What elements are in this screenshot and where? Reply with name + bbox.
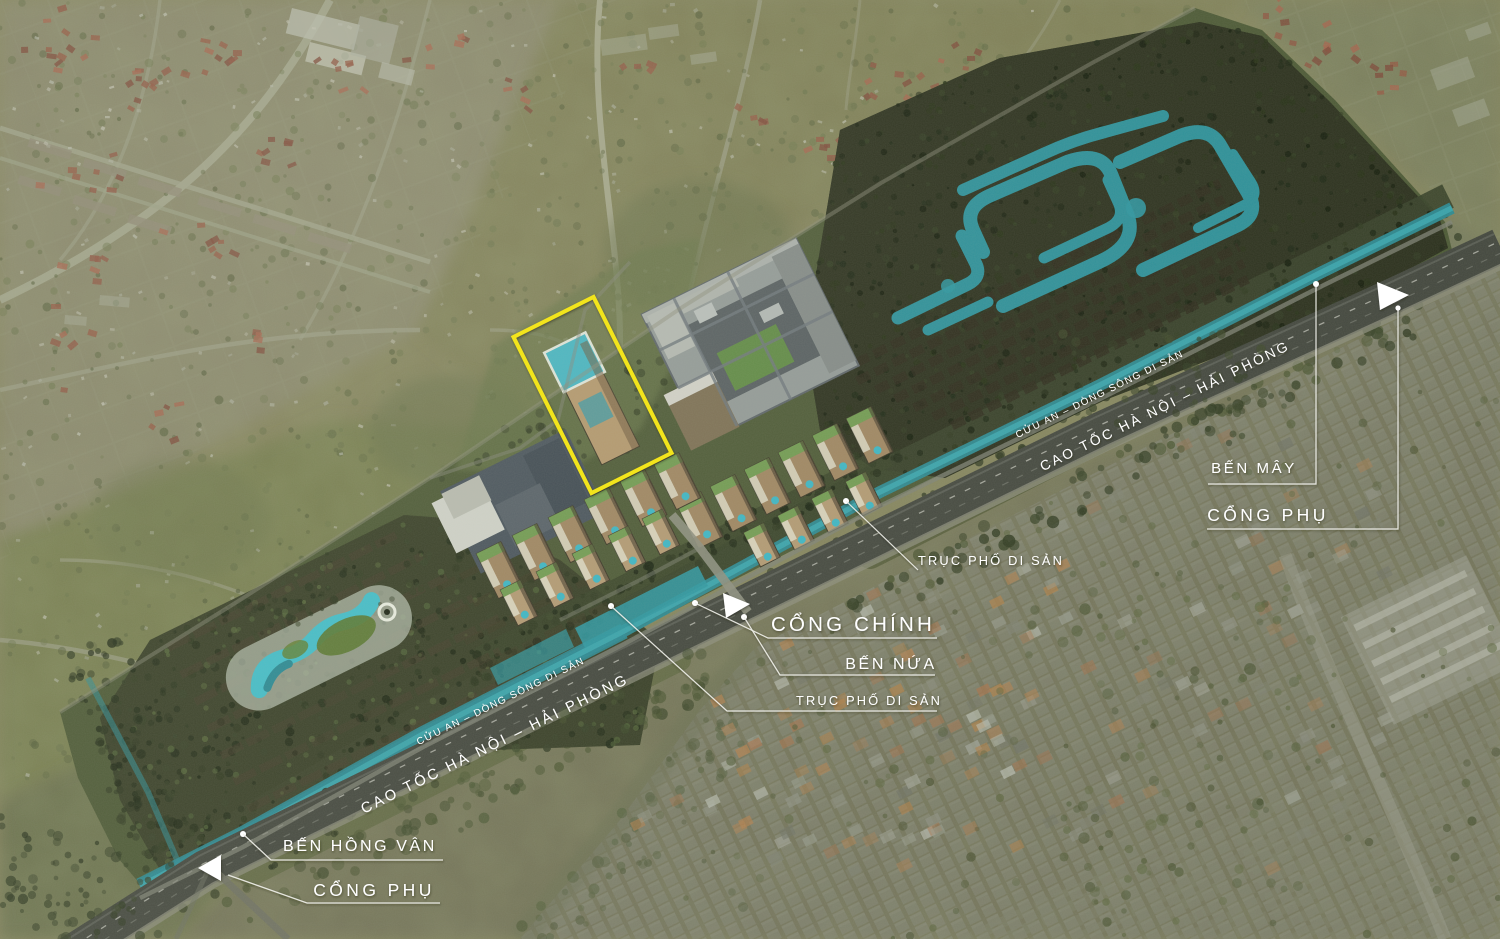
svg-text:CỔNG PHỤ: CỔNG PHỤ <box>1207 504 1329 525</box>
svg-text:TRỤC PHỐ DI SẢN: TRỤC PHỐ DI SẢN <box>918 553 1064 568</box>
svg-text:TRỤC PHỐ DI SẢN: TRỤC PHỐ DI SẢN <box>796 693 942 708</box>
svg-text:BẾN NỨA: BẾN NỨA <box>845 654 936 673</box>
svg-text:BẾN MÂY: BẾN MÂY <box>1211 460 1297 477</box>
svg-text:BẾN HỒNG VÂN: BẾN HỒNG VÂN <box>283 836 437 855</box>
svg-text:CỔNG CHÍNH: CỔNG CHÍNH <box>771 612 935 636</box>
svg-text:CỔNG PHỤ: CỔNG PHỤ <box>313 879 435 900</box>
